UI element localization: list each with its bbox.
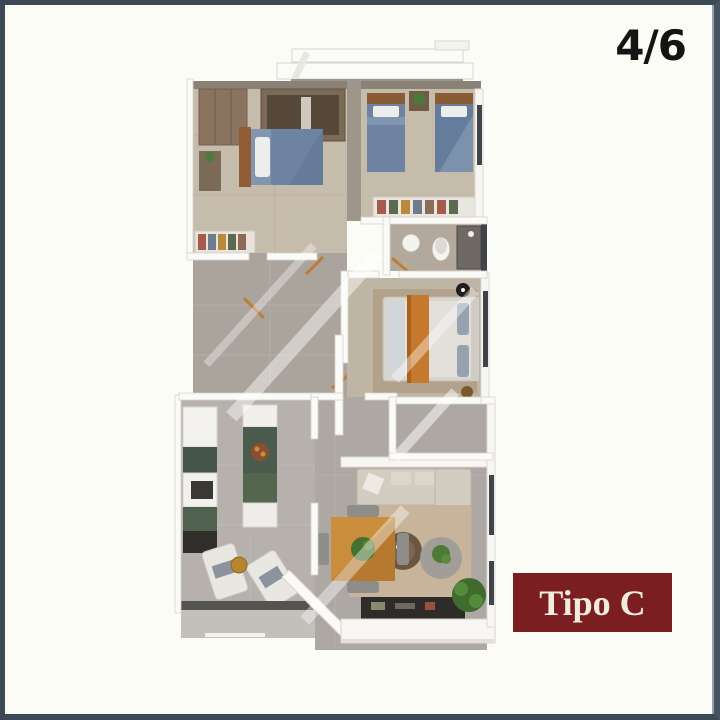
window bbox=[489, 475, 494, 535]
bedroom-1 bbox=[193, 81, 347, 253]
window bbox=[483, 291, 488, 367]
fruit-bowl-icon bbox=[251, 443, 269, 461]
plant-icon bbox=[452, 578, 486, 612]
image-counter: 4/6 bbox=[615, 21, 686, 70]
unit-type-label: Tipo C bbox=[513, 573, 672, 632]
kitchen-island bbox=[243, 405, 277, 527]
closet-clothes bbox=[195, 231, 255, 253]
tv-console bbox=[361, 597, 465, 619]
decor bbox=[461, 386, 473, 398]
bedroom-2 bbox=[361, 81, 483, 217]
window bbox=[477, 105, 482, 165]
plant-icon bbox=[413, 93, 425, 105]
image-viewer-frame: 4/6 bbox=[0, 0, 720, 720]
window bbox=[489, 561, 494, 605]
side-table-icon bbox=[231, 557, 247, 573]
bedroom-divider-wall bbox=[347, 81, 361, 221]
bathroom-1 bbox=[389, 221, 487, 276]
frame-right-highlight bbox=[712, 5, 714, 714]
terrace-edge bbox=[181, 601, 315, 610]
kitchen-counter-left bbox=[183, 407, 217, 553]
wardrobe-clothes bbox=[373, 197, 475, 217]
single-bed-1 bbox=[367, 93, 405, 172]
sink-icon bbox=[402, 234, 420, 252]
plant-icon bbox=[205, 152, 215, 162]
single-bed-2 bbox=[435, 93, 473, 172]
double-bed bbox=[239, 127, 323, 187]
